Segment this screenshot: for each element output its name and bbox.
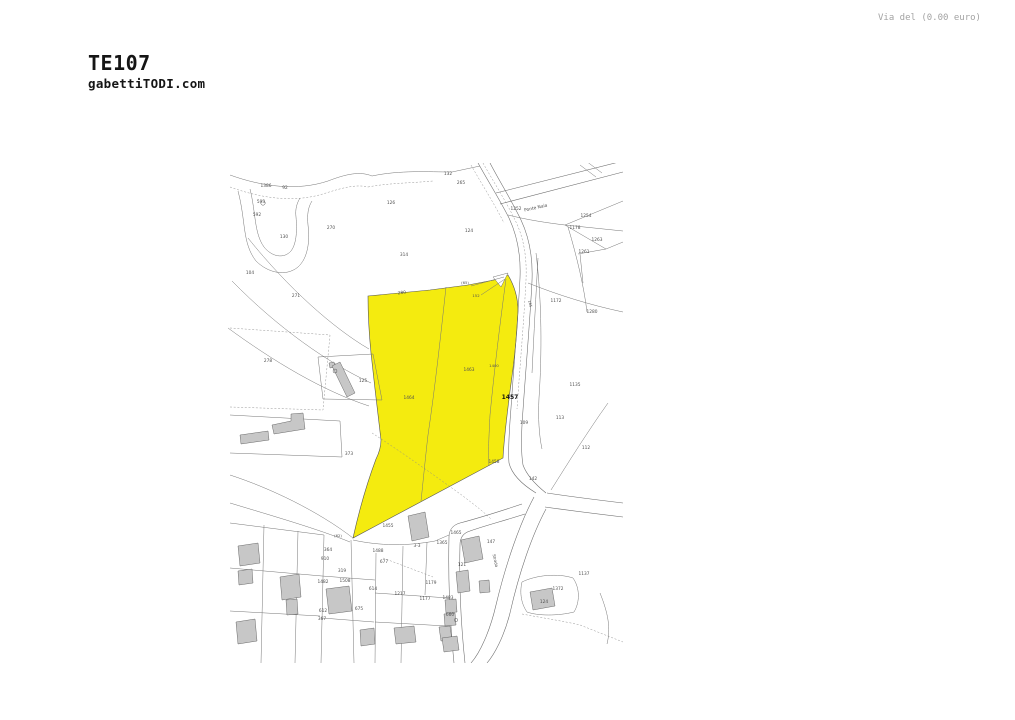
agency-site: gabettiTODI.com [88,76,205,91]
parcel-label: 1463 [464,367,475,373]
listing-header: TE107 gabettiTODI.com [88,52,205,91]
parcel-label: 1252 [511,206,522,212]
parcel-label: 125 [359,378,367,384]
parcel-label: 364 [324,547,332,553]
parcel-label: 1217 [395,591,406,597]
parcel-label: (62) [334,533,342,538]
parcel-label: 280 [398,290,407,297]
parcel-label: 1465 [451,530,462,536]
parcel-label: 124 [540,599,548,605]
parcel-label: 677 [380,559,388,565]
parcel-label: 1488 [373,548,384,554]
parcel-label: 1254 [581,213,592,219]
highlighted-parcel [353,273,518,538]
cadastral-map: 1386925935921302701261042713141322651252… [228,163,623,663]
parcel-label: 147 [487,539,495,545]
parcel-label: 1372 [553,586,564,592]
parcel-label: 142 [529,476,537,482]
listing-page: { "page": {"background": "#ffffff"}, "he… [0,0,1015,720]
parcel-label: 319 [338,568,346,574]
parcel-label: 271 [292,293,300,299]
parcel-label: 270 [327,225,335,231]
parcel-label: 1177 [420,596,431,602]
parcel-label: 373 [345,451,353,457]
parcel-label: 1135 [570,382,581,388]
parcel-label: 109 [520,420,528,426]
parcel-label: 1263 [592,237,603,243]
parcel-label: 92 [282,185,288,191]
parcel-label: 1386 [261,183,272,189]
parcel-label: 124 [465,228,473,234]
parcel-label: 185 [527,300,533,308]
parcel-label: 592 [253,212,261,218]
parcel-label: (65) [461,280,469,285]
parcel-label: Strada [492,554,500,568]
parcel-label: 278 [264,358,272,364]
parcel-label: 112 [582,445,590,451]
parcel-label: 265 [457,180,465,186]
parcel-label: 121 [458,562,466,568]
parcel-label: 593 [257,199,265,205]
parcel-label: 660 [446,612,454,618]
parcel-label: 1172 [551,298,562,304]
parcel-label: 1365 [437,540,448,546]
parcel-label: 1179 [426,580,437,586]
parcel-label: 3-3 [413,543,420,549]
parcel-label: 1508 [340,578,351,584]
parcel-label: 132 [444,171,452,177]
parcel-label: 1280 [587,309,598,315]
parcel-label: 910 [321,556,329,562]
parcel-label: 126 [387,200,395,206]
parcel-label: 675 [355,606,363,612]
cadastral-map-svg: 1386925935921302701261042713141322651252… [228,163,623,663]
parcel-label: 314 [400,252,408,258]
listing-code: TE107 [88,52,205,74]
parcel-label: 1137 [579,571,590,577]
parcel-label: 1482 [318,579,329,585]
parcel-label: 1178 [570,225,581,231]
parcel-label: 614 [369,586,377,592]
parcel-label: 1464 [404,395,415,401]
parcel-label: 113 [556,415,564,421]
parcel-label: 130 [280,234,288,240]
parcel-label: 152 [472,293,480,298]
parcel-label: 1483 [443,595,454,601]
parcel-label: 1400 [489,363,499,368]
parcel-label: 1261 [579,249,590,255]
address-note: Via del (0.00 euro) [878,13,981,23]
parcel-label: Ponte Naia [524,202,549,213]
parcel-label: 104 [246,270,254,276]
parcel-label: 367 [318,616,326,622]
main-parcel-label: 1457 [502,394,519,401]
parcel-label: 1458 [489,459,500,465]
parcel-label: 612 [319,608,327,614]
highlighted-parcel-shape [353,275,518,538]
parcel-label: 1455 [383,523,394,529]
